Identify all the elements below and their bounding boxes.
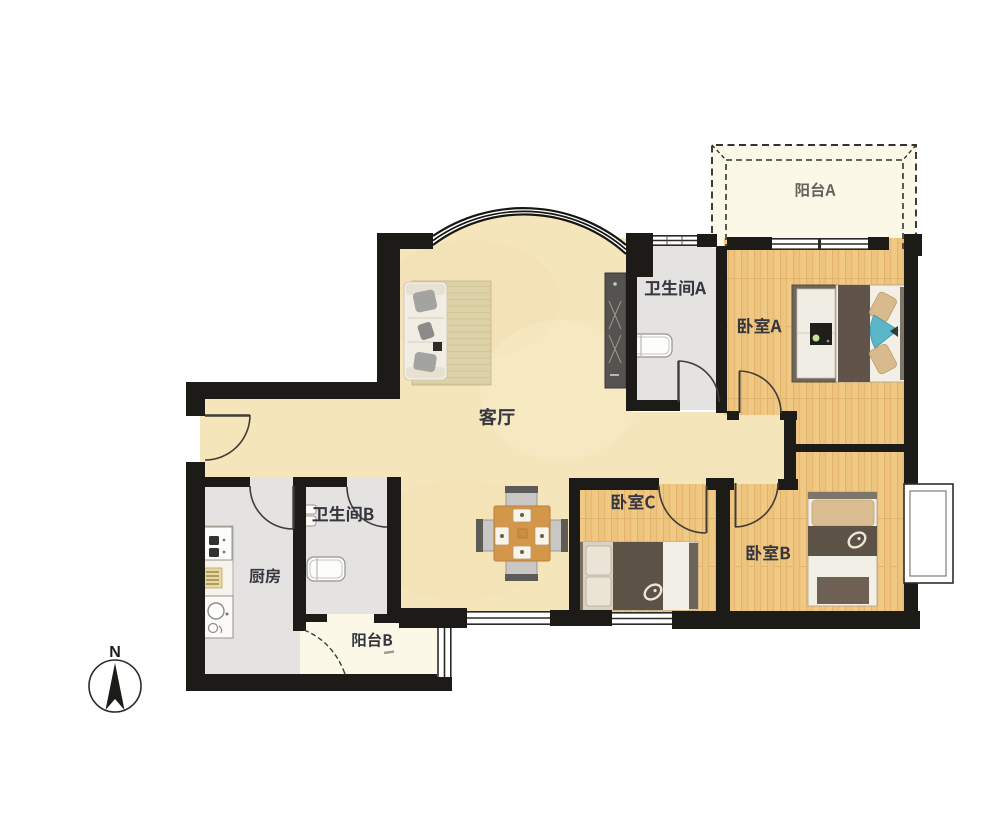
svg-text:N: N (109, 644, 121, 661)
